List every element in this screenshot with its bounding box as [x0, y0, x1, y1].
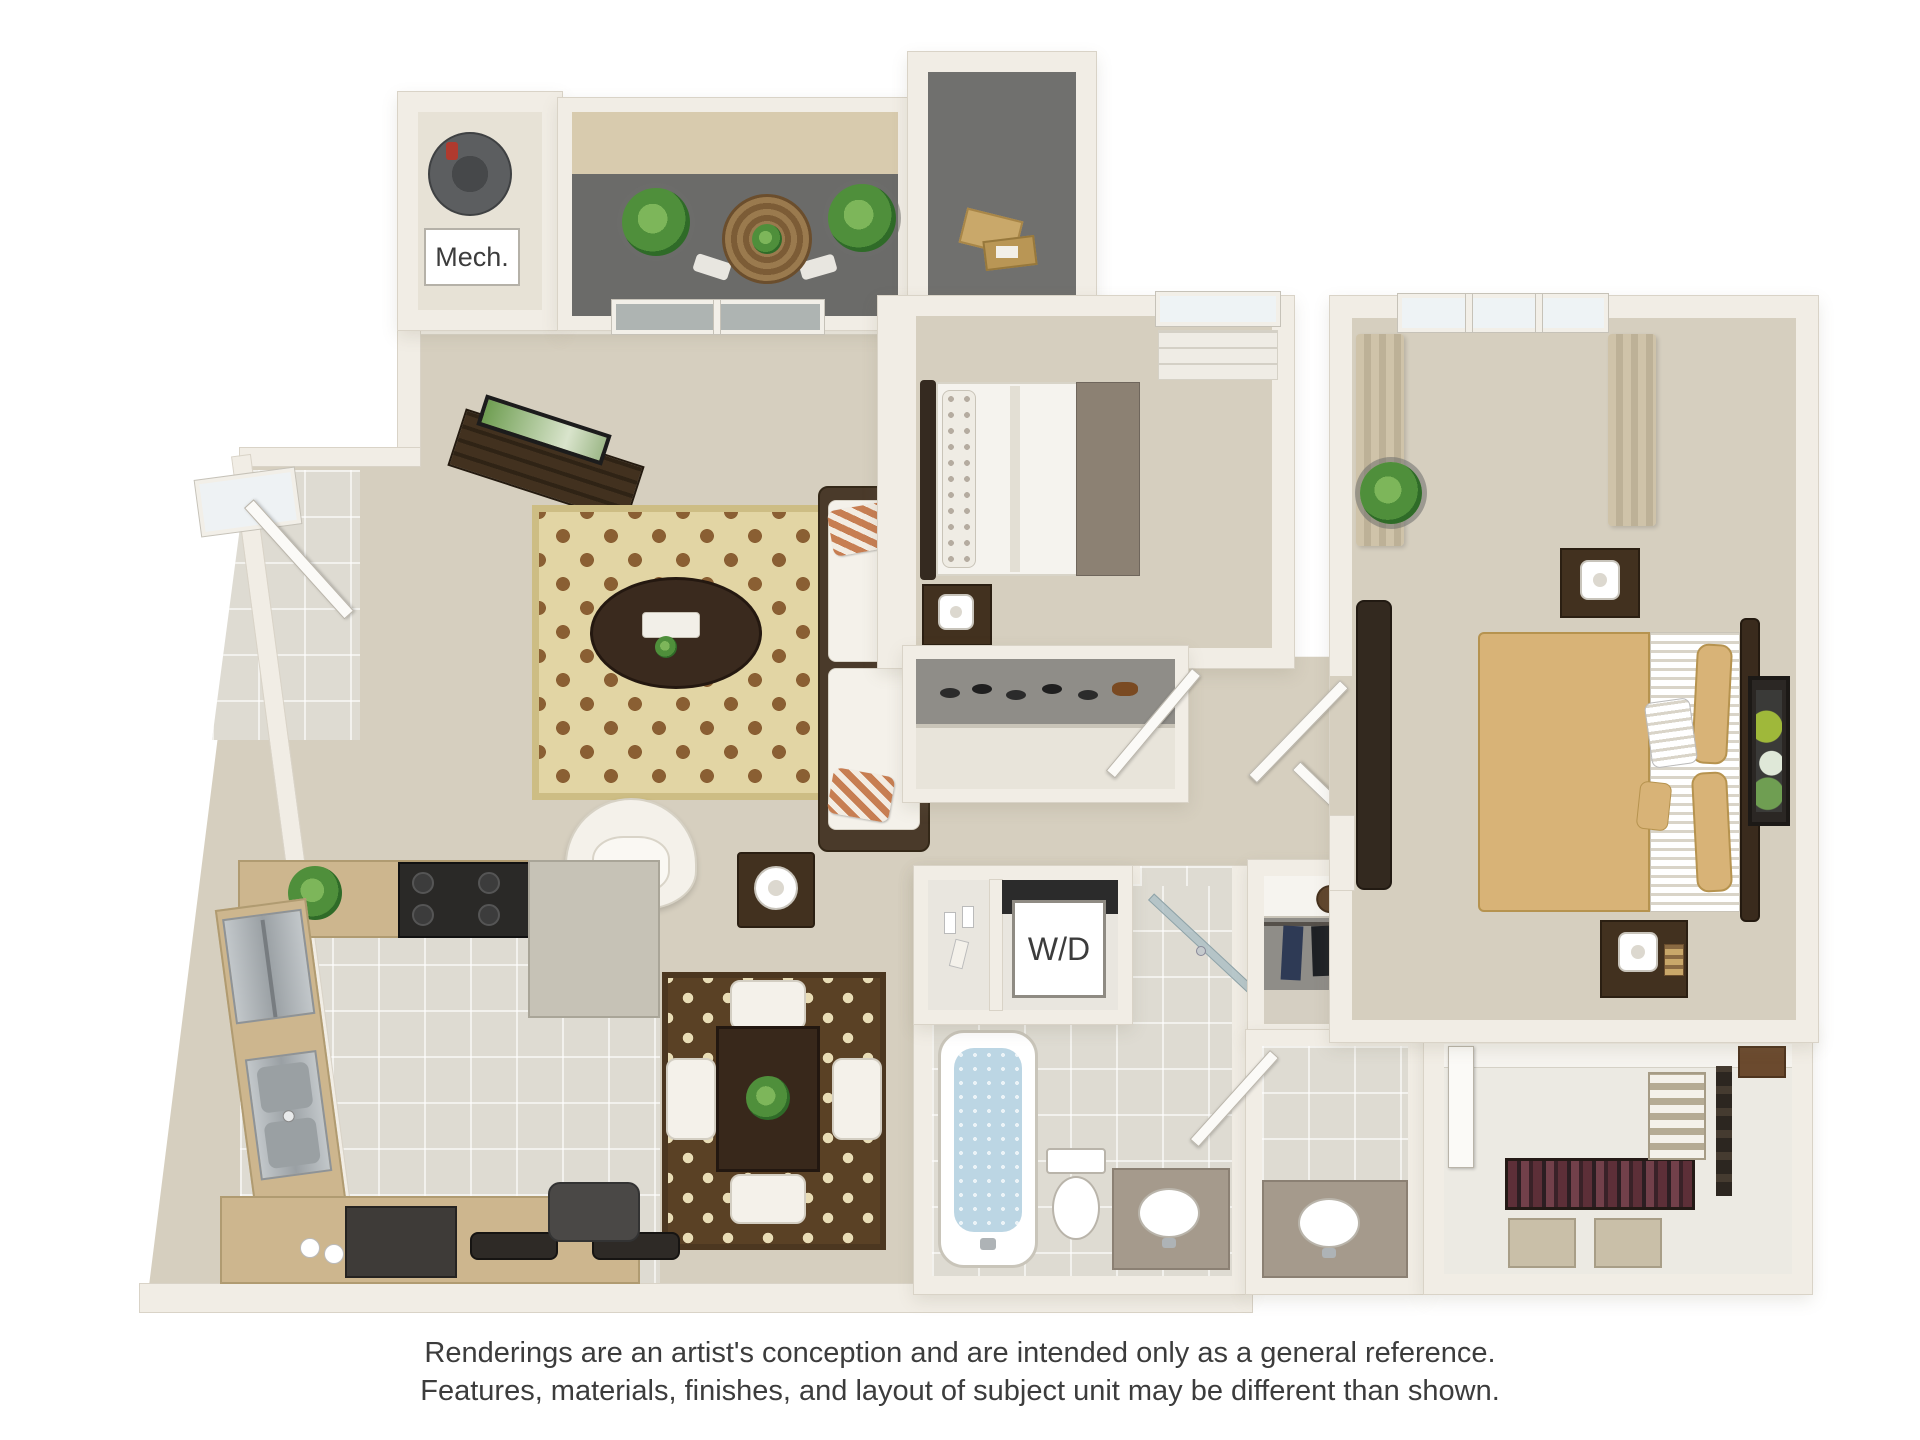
dining-centerpiece	[746, 1076, 790, 1120]
master-lamp-north	[1580, 560, 1620, 600]
patio-table-plant	[752, 224, 782, 254]
built-in-room-door	[1448, 1046, 1474, 1168]
dining-chair-north	[730, 980, 806, 1030]
closet-sliding-track	[916, 724, 1175, 728]
bathroom-door-opening	[1140, 866, 1232, 886]
bookshelf	[1505, 1158, 1695, 1210]
master-lumbar-pillow	[1636, 780, 1673, 831]
bathroom-sink	[1138, 1188, 1200, 1238]
master-nightstand-books	[1664, 944, 1684, 976]
linen-bottle-1	[944, 912, 956, 934]
shoe-rack	[1648, 1072, 1706, 1160]
master-window-mullion-2	[1536, 294, 1542, 332]
disclaimer-line-2: Features, materials, finishes, and layou…	[0, 1372, 1920, 1410]
dishwasher	[345, 1206, 457, 1278]
bedroom2-pillow	[942, 390, 976, 568]
bedroom2-window	[1156, 292, 1280, 326]
patio-plant-right	[828, 184, 896, 252]
closet-item-brown	[1112, 682, 1138, 696]
side-table-lamp	[754, 866, 798, 910]
disclaimer-line-1: Renderings are an artist's conception an…	[0, 1334, 1920, 1372]
washer-dryer-label-text: W/D	[1028, 931, 1090, 968]
placemat-1	[470, 1232, 558, 1260]
refrigerator-handle	[261, 920, 278, 1018]
room-storage-closet	[908, 52, 1096, 330]
coffee-table-plant	[655, 636, 677, 658]
mech-label-text: Mech.	[435, 242, 509, 273]
bedroom2-foot-blanket	[1076, 382, 1140, 576]
storage-box-brown	[1738, 1046, 1786, 1078]
bedroom2-roman-shade	[1158, 330, 1278, 380]
dining-chair-west	[666, 1058, 716, 1140]
master-window-mullion-1	[1466, 294, 1472, 332]
master-bed-comforter	[1478, 632, 1650, 912]
coffee-table-tray	[642, 612, 700, 638]
sink-bowl-1	[256, 1061, 314, 1113]
bathroom-sink-faucet	[1162, 1238, 1176, 1248]
bathtub-faucet	[980, 1238, 996, 1250]
toilet-bowl	[1052, 1176, 1100, 1240]
master-bath-sink	[1298, 1198, 1360, 1248]
dining-chair-east	[832, 1058, 882, 1140]
closet-shoe-2	[972, 684, 992, 694]
toilet-tank	[1046, 1148, 1106, 1174]
master-bath-faucet	[1322, 1248, 1336, 1258]
wall-entry-stub	[240, 448, 420, 466]
floor-plan-rendering: Mech.	[0, 0, 1920, 1440]
master-curtain-right	[1608, 334, 1656, 526]
bedroom2-sheet-fold	[1010, 386, 1020, 572]
bedroom2-lamp	[938, 594, 974, 630]
disclaimer-text: Renderings are an artist's conception an…	[0, 1334, 1920, 1411]
washer-dryer-unit: W/D	[1012, 900, 1106, 998]
water-heater-valve	[446, 142, 458, 160]
wall-master-left-lower	[1330, 816, 1354, 890]
built-in-rod-clothes	[1716, 1066, 1732, 1196]
closet-shoe-3	[1006, 690, 1026, 700]
master-pillow-1	[1691, 643, 1733, 765]
mech-label: Mech.	[424, 228, 520, 286]
master-pillow-2	[1691, 771, 1733, 893]
kitchen-sink	[245, 1050, 333, 1180]
water-heater	[428, 132, 512, 216]
shower-door-handle	[1196, 946, 1206, 956]
master-plant	[1360, 462, 1422, 524]
hanging-garment-1	[1281, 926, 1304, 981]
laundry-divider-wall	[990, 880, 1002, 1010]
sliding-door-mullion	[714, 300, 720, 334]
patio-plant-left	[622, 188, 690, 256]
bathtub-water	[954, 1048, 1022, 1232]
master-wall-art-print	[1756, 690, 1782, 812]
master-accent-pillow	[1644, 697, 1699, 769]
linen-bottle-2	[962, 906, 974, 928]
master-lamp-south	[1618, 932, 1658, 972]
balcony-privacy-wall	[572, 112, 898, 174]
stove-burner-4	[478, 904, 500, 926]
stool-1	[1508, 1218, 1576, 1268]
master-dresser	[1356, 600, 1392, 890]
canister-1	[300, 1238, 320, 1258]
closet-shoe-4	[1042, 684, 1062, 694]
closet-shoe-1	[940, 688, 960, 698]
dining-chair-south	[730, 1174, 806, 1224]
canister-2	[324, 1244, 344, 1264]
stove-burner-2	[478, 872, 500, 894]
master-window	[1398, 294, 1608, 332]
stool-2	[1594, 1218, 1662, 1268]
trash-can	[548, 1182, 640, 1242]
sink-bowl-2	[263, 1117, 321, 1169]
stove-burner-3	[412, 904, 434, 926]
stove-burner-1	[412, 872, 434, 894]
closet-shoe-5	[1078, 690, 1098, 700]
storage-package-label	[996, 246, 1018, 258]
kitchen-peninsula	[528, 860, 660, 1018]
bedroom2-headboard	[920, 380, 936, 580]
refrigerator	[222, 909, 315, 1025]
